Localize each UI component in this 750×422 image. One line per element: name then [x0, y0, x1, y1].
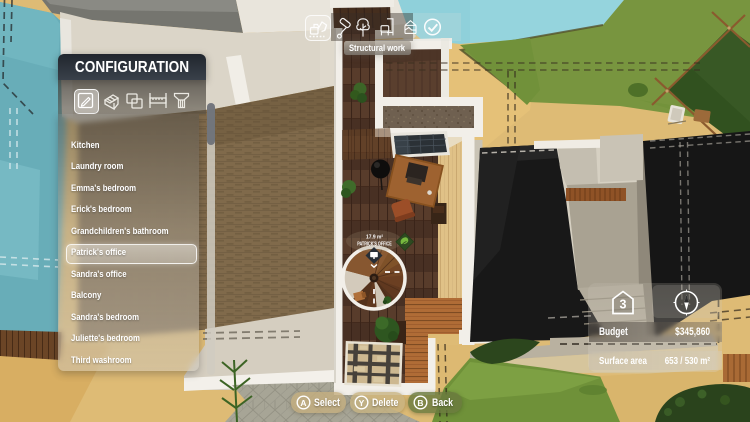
svg-text:3: 3: [620, 298, 627, 312]
svg-text:17.9 m²: 17.9 m²: [366, 234, 383, 241]
svg-text:B: B: [417, 398, 423, 408]
svg-text:Y: Y: [359, 398, 365, 408]
svg-text:PATRICK'S OFFICE: PATRICK'S OFFICE: [357, 242, 392, 248]
svg-text:A: A: [300, 398, 306, 408]
